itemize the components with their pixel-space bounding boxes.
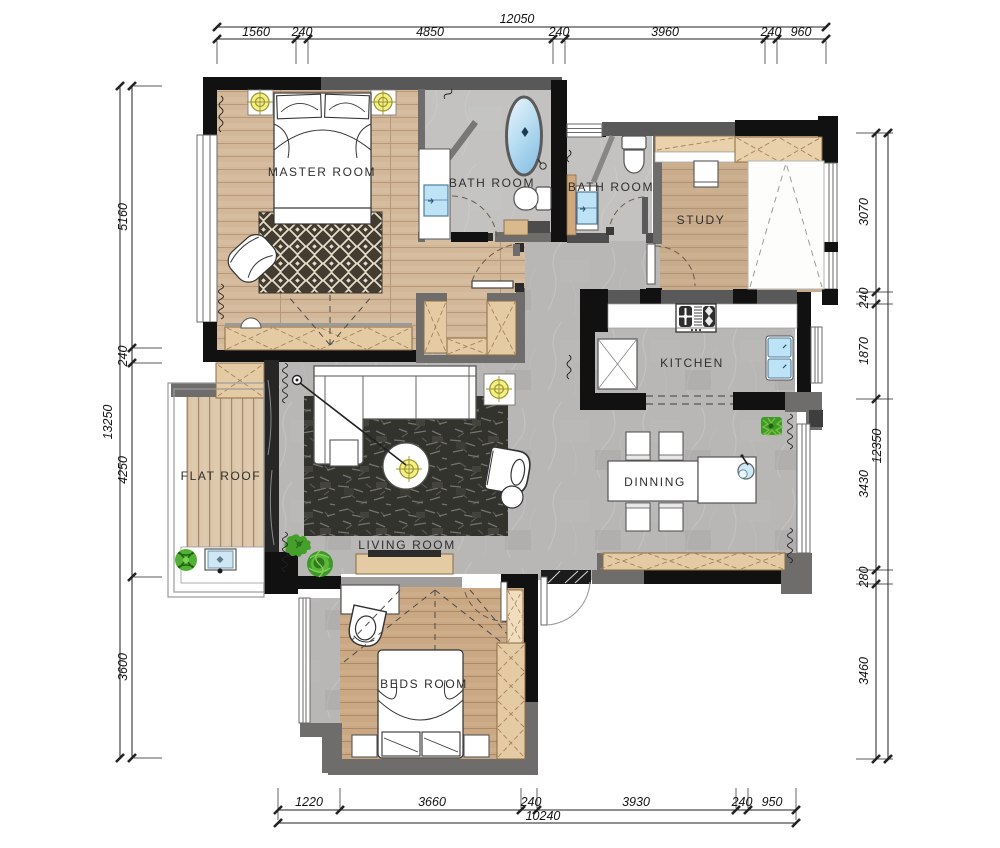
svg-text:BATH ROOM: BATH ROOM <box>568 180 654 194</box>
svg-text:3660: 3660 <box>418 795 446 809</box>
svg-text:4250: 4250 <box>116 456 130 484</box>
svg-text:960: 960 <box>791 25 812 39</box>
svg-text:240: 240 <box>116 346 130 368</box>
svg-text:1560: 1560 <box>242 25 270 39</box>
svg-text:FLAT ROOF: FLAT ROOF <box>181 469 262 483</box>
svg-text:240: 240 <box>291 25 313 39</box>
svg-text:240: 240 <box>520 795 542 809</box>
svg-text:12050: 12050 <box>500 12 535 26</box>
svg-text:BEDS ROOM: BEDS ROOM <box>380 677 468 691</box>
svg-text:4850: 4850 <box>416 25 444 39</box>
svg-text:3070: 3070 <box>857 198 871 226</box>
svg-text:LIVING ROOM: LIVING ROOM <box>358 538 456 552</box>
svg-text:1870: 1870 <box>857 337 871 365</box>
svg-text:240: 240 <box>760 25 782 39</box>
svg-text:950: 950 <box>762 795 783 809</box>
svg-text:3960: 3960 <box>651 25 679 39</box>
svg-text:STUDY: STUDY <box>677 213 726 227</box>
svg-text:280: 280 <box>857 567 871 589</box>
svg-text:3430: 3430 <box>857 470 871 498</box>
svg-text:BATH ROOM: BATH ROOM <box>449 176 535 190</box>
svg-text:240: 240 <box>731 795 753 809</box>
svg-text:240: 240 <box>857 288 871 310</box>
svg-text:3930: 3930 <box>622 795 650 809</box>
svg-text:1220: 1220 <box>295 795 323 809</box>
svg-text:DINNING: DINNING <box>624 475 686 489</box>
svg-text:13250: 13250 <box>101 405 115 440</box>
svg-text:5160: 5160 <box>116 203 130 231</box>
svg-text:3600: 3600 <box>116 653 130 681</box>
svg-text:10240: 10240 <box>526 809 561 823</box>
svg-text:MASTER ROOM: MASTER ROOM <box>268 165 376 179</box>
svg-text:12350: 12350 <box>870 429 884 464</box>
svg-text:3460: 3460 <box>857 657 871 685</box>
svg-text:KITCHEN: KITCHEN <box>660 356 724 370</box>
svg-text:240: 240 <box>548 25 570 39</box>
